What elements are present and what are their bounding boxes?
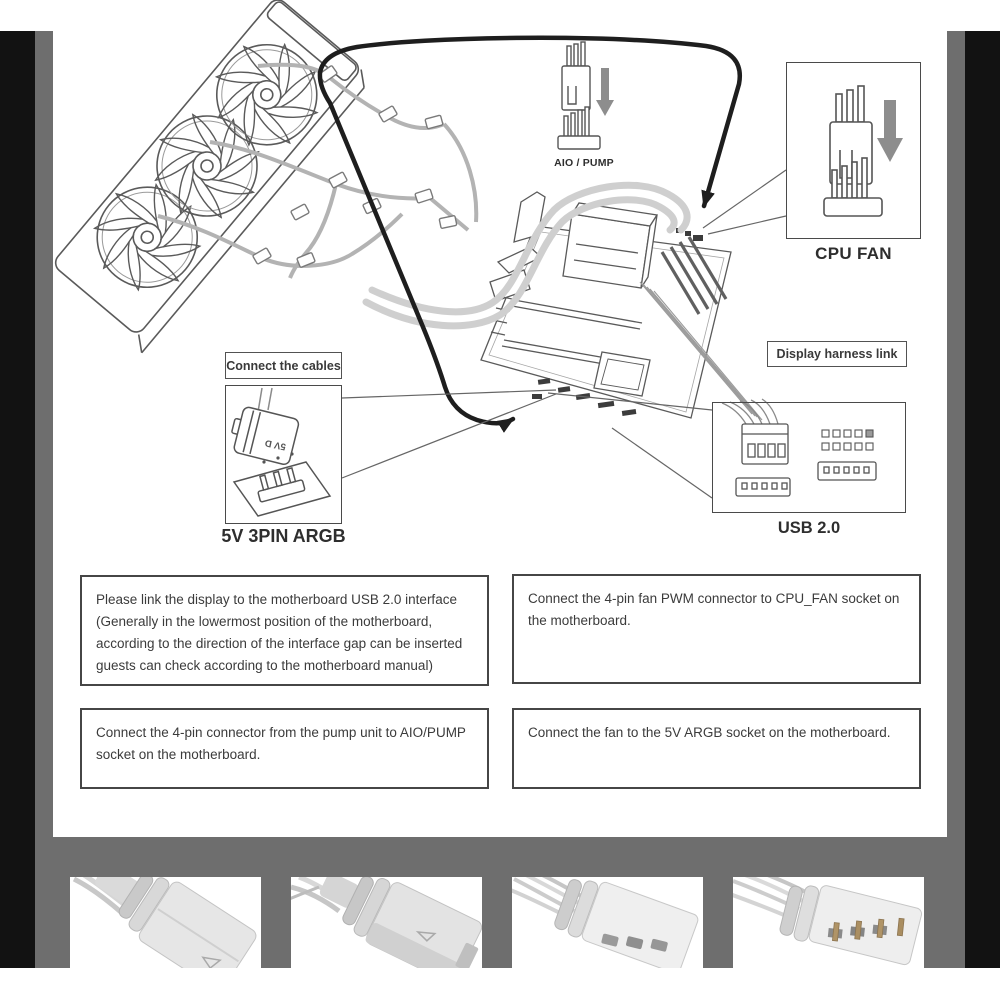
instruction-aio-pump-text: Connect the 4-pin connector from the pum… — [96, 725, 466, 762]
usb-detail-box — [712, 402, 906, 513]
argb-connector-photo-1 — [70, 877, 261, 968]
display-harness-ribbon — [640, 282, 762, 420]
connect-the-cables-label: Connect the cables — [226, 359, 341, 373]
argb-label: 5V 3PIN ARGB — [205, 526, 362, 547]
motherboard-illustration — [481, 192, 731, 418]
argb-connector-photo-2 — [291, 877, 482, 968]
photo-argb-connector-front — [70, 877, 261, 968]
frame-black-left — [0, 31, 35, 968]
pump-connector-photo-4 — [733, 877, 924, 968]
frame-black-right — [965, 31, 1000, 968]
instruction-cpu-fan: Connect the 4-pin fan PWM connector to C… — [512, 574, 921, 684]
photo-argb-connector-side — [291, 877, 482, 968]
aio-pump-connector-icon — [558, 42, 614, 149]
cpu-fan-detail-box — [786, 62, 921, 239]
display-harness-link-callout: Display harness link — [767, 341, 907, 367]
instruction-usb: Please link the display to the motherboa… — [80, 575, 489, 686]
down-arrow-icon — [596, 68, 614, 116]
photo-fan-3pin-connector — [512, 877, 703, 968]
instruction-argb: Connect the fan to the 5V ARGB socket on… — [512, 708, 921, 789]
argb-detail-box — [225, 385, 342, 524]
black-cable-loop — [320, 38, 740, 423]
radiator-illustration — [45, 0, 373, 353]
frame-gray-right — [947, 31, 965, 968]
display-harness-link-label: Display harness link — [777, 347, 898, 361]
instruction-cpu-fan-text: Connect the 4-pin fan PWM connector to C… — [528, 591, 899, 628]
manual-page: 5V D — [0, 0, 1000, 1000]
instruction-usb-text: Please link the display to the motherboa… — [96, 592, 462, 673]
usb-label: USB 2.0 — [712, 519, 906, 538]
photo-pump-4pin-connector — [733, 877, 924, 968]
instruction-argb-text: Connect the fan to the 5V ARGB socket on… — [528, 725, 890, 740]
frame-gray-left — [35, 31, 53, 968]
instruction-aio-pump: Connect the 4-pin connector from the pum… — [80, 708, 489, 789]
aio-tubes — [366, 185, 687, 326]
fan-connector-photo-3 — [512, 877, 703, 968]
cpu-fan-label: CPU FAN — [786, 244, 921, 264]
connect-the-cables-callout: Connect the cables — [225, 352, 342, 379]
fan-cable-harness — [158, 65, 476, 278]
aio-pump-label: AIO / PUMP — [534, 157, 634, 169]
harness-connectors — [253, 65, 457, 267]
